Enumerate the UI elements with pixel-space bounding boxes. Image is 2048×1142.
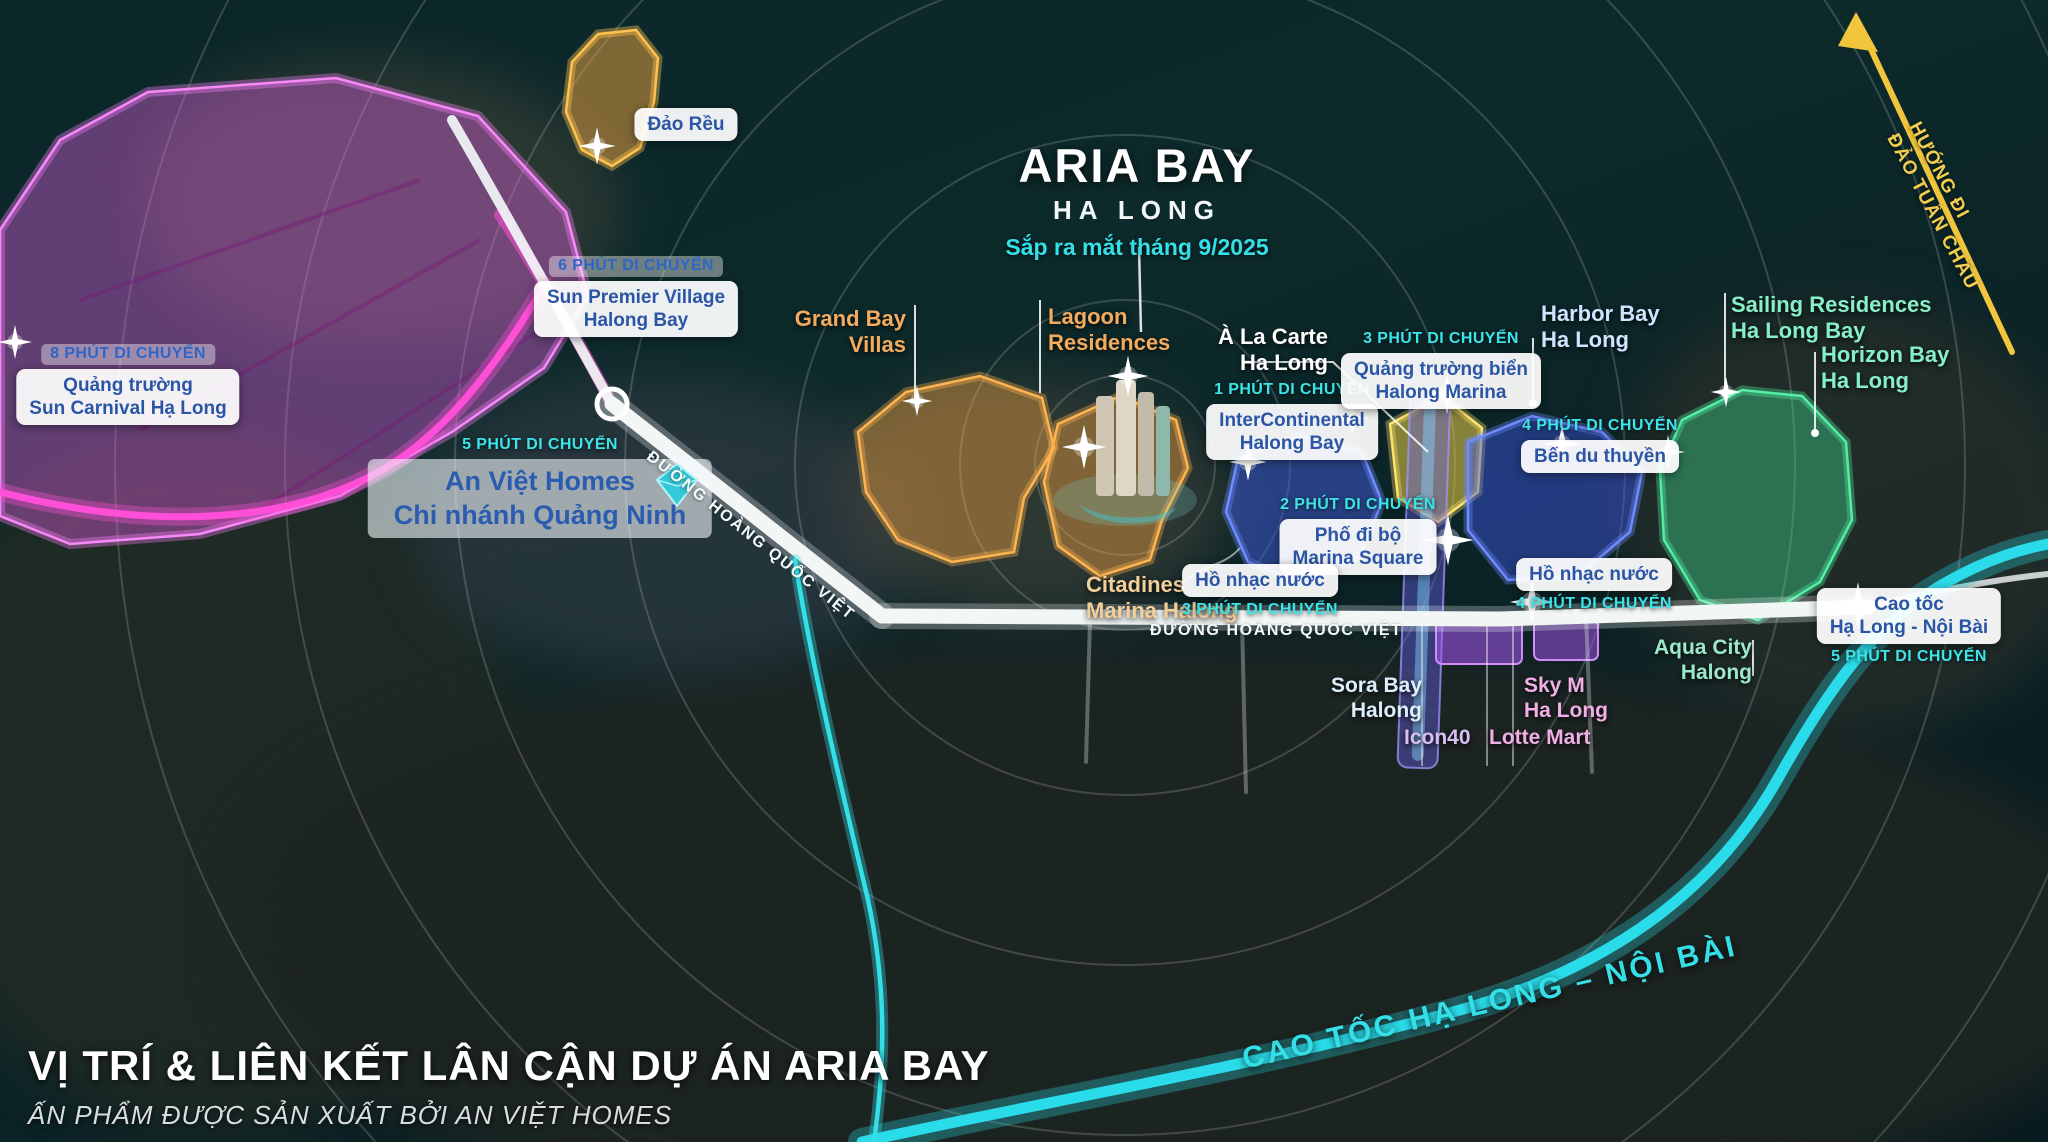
ho-nhac-nuoc-2-travel-time: 4 PHÚT DI CHUYỂN [1516, 595, 1672, 614]
sun-premier-line1: Sun Premier Village [547, 286, 725, 309]
expressway-exit-travel-time: 5 PHÚT DI CHUYỂN [1831, 648, 1987, 667]
sora-bay-line2: Halong [1284, 699, 1422, 724]
an-viet-line2: Chi nhánh Quảng Ninh [394, 499, 686, 533]
sora-bay-line1: Sora Bay [1284, 674, 1422, 699]
label-ho-nhac-nuoc-2: Hồ nhạc nước 4 PHÚT DI CHUYỂN [1516, 558, 1672, 614]
horizon-line2: Ha Long [1821, 368, 1949, 394]
ben-du-thuyen-pill: Bến du thuyền [1521, 440, 1679, 473]
project-name: ARIA BAY [1005, 138, 1268, 193]
project-title-block: ARIA BAY HA LONG Sắp ra mắt tháng 9/2025 [1005, 138, 1268, 261]
location-map-poster: ARIA BAY HA LONG Sắp ra mắt tháng 9/2025… [0, 0, 2048, 1142]
label-sora-bay: Sora Bay Halong [1284, 674, 1422, 724]
a-la-carte-line2: Ha Long [1158, 350, 1328, 376]
an-viet-travel-time: 5 PHÚT DI CHUYỂN [462, 436, 618, 455]
sky-m-line1: Sky M [1524, 674, 1608, 699]
sun-carnival-pill: Quảng trường Sun Carnival Hạ Long [16, 369, 239, 425]
intercontinental-line2: Halong Bay [1219, 432, 1365, 455]
label-halong-marina-beach-square: 3 PHÚT DI CHUYỂN Quảng trường biển Halon… [1341, 330, 1541, 409]
sun-carnival-line1: Quảng trường [29, 374, 226, 397]
sun-premier-travel-time: 6 PHÚT DI CHUYỂN [549, 256, 723, 277]
label-lotte-mart: Lotte Mart [1489, 726, 1591, 751]
pho-di-bo-line1: Phố đi bộ [1293, 524, 1424, 547]
intercontinental-pill: InterContinental Halong Bay [1206, 404, 1378, 460]
sailing-line2: Ha Long Bay [1731, 318, 1932, 344]
zone-grand-bay [858, 376, 1054, 562]
grand-bay-line2: Villas [770, 332, 906, 358]
expressway-exit-pill: Cao tốc Hạ Long - Nội Bài [1817, 588, 2001, 644]
sun-premier-line2: Halong Bay [547, 309, 725, 332]
aqua-city-line2: Halong [1620, 661, 1752, 686]
footer-credit: ẤN PHẨM ĐƯỢC SẢN XUẤT BỞI AN VIỆT HOMES [28, 1100, 990, 1131]
footer-block: VỊ TRÍ & LIÊN KẾT LÂN CẬN DỰ ÁN ARIA BAY… [28, 1042, 990, 1131]
label-ho-nhac-nuoc-1: Hồ nhạc nước 3 PHÚT DI CHUYỂN [1182, 564, 1338, 620]
grand-bay-line1: Grand Bay [770, 306, 906, 332]
label-icon40: Icon40 [1404, 726, 1471, 751]
horizon-line1: Horizon Bay [1821, 342, 1949, 368]
marina-beach-line1: Quảng trường biển [1354, 358, 1528, 381]
marina-beach-line2: Halong Marina [1354, 381, 1528, 404]
label-grand-bay-villas: Grand Bay Villas [770, 306, 906, 358]
label-sky-m: Sky M Ha Long [1524, 674, 1608, 724]
sun-premier-pill: Sun Premier Village Halong Bay [534, 281, 738, 337]
label-sailing-residences: Sailing Residences Ha Long Bay [1731, 292, 1932, 344]
intercontinental-line1: InterContinental [1219, 409, 1365, 432]
harbor-bay-line2: Ha Long [1541, 327, 1660, 353]
ho-nhac-nuoc-1-travel-time: 3 PHÚT DI CHUYỂN [1182, 601, 1338, 620]
label-lagoon-residences: Lagoon Residences [1048, 304, 1170, 356]
label-harbor-bay: Harbor Bay Ha Long [1541, 301, 1660, 353]
label-expressway-exit: Cao tốc Hạ Long - Nội Bài 5 PHÚT DI CHUY… [1817, 588, 2001, 667]
marina-beach-pill: Quảng trường biển Halong Marina [1341, 353, 1541, 409]
label-sun-premier-village: 6 PHÚT DI CHUYỂN Sun Premier Village Hal… [534, 256, 738, 337]
sun-carnival-line2: Sun Carnival Hạ Long [29, 397, 226, 420]
zone-sailing-residences [1660, 390, 1852, 620]
sailing-line1: Sailing Residences [1731, 292, 1932, 318]
ben-du-thuyen-travel-time: 4 PHÚT DI CHUYỂN [1522, 417, 1678, 436]
ho-nhac-nuoc-2-pill: Hồ nhạc nước [1516, 558, 1672, 591]
a-la-carte-line1: À La Carte [1158, 324, 1328, 350]
project-launch-date: Sắp ra mắt tháng 9/2025 [1005, 234, 1268, 261]
project-city: HA LONG [1005, 195, 1268, 226]
lagoon-line1: Lagoon [1048, 304, 1170, 330]
label-a-la-carte: À La Carte Ha Long [1158, 324, 1328, 376]
pho-di-bo-travel-time: 2 PHÚT DI CHUYỂN [1280, 496, 1436, 515]
label-ben-du-thuyen: 4 PHÚT DI CHUYỂN Bến du thuyền [1521, 417, 1679, 473]
label-dao-reu: Đảo Rều [634, 108, 737, 141]
footer-title: VỊ TRÍ & LIÊN KẾT LÂN CẬN DỰ ÁN ARIA BAY [28, 1042, 990, 1090]
expressway-exit-line2: Hạ Long - Nội Bài [1830, 616, 1988, 639]
sun-carnival-travel-time: 8 PHÚT DI CHUYỂN [41, 344, 215, 365]
an-viet-line1: An Việt Homes [394, 465, 686, 499]
ho-nhac-nuoc-1-pill: Hồ nhạc nước [1182, 564, 1338, 597]
harbor-bay-line1: Harbor Bay [1541, 301, 1660, 327]
label-aqua-city: Aqua City Halong [1620, 636, 1752, 686]
dao-reu-pill: Đảo Rều [634, 108, 737, 141]
label-horizon-bay: Horizon Bay Ha Long [1821, 342, 1949, 394]
expressway-exit-line1: Cao tốc [1830, 593, 1988, 616]
roundabout-node [597, 389, 627, 419]
marina-beach-travel-time: 3 PHÚT DI CHUYỂN [1363, 330, 1519, 349]
label-sun-carnival: 8 PHÚT DI CHUYỂN Quảng trường Sun Carniv… [16, 344, 239, 425]
lagoon-line2: Residences [1048, 330, 1170, 356]
road-label-hqv-horizontal: ĐƯỜNG HOÀNG QUỐC VIỆT [1150, 622, 1403, 641]
sky-m-line2: Ha Long [1524, 699, 1608, 724]
aqua-city-line1: Aqua City [1620, 636, 1752, 661]
